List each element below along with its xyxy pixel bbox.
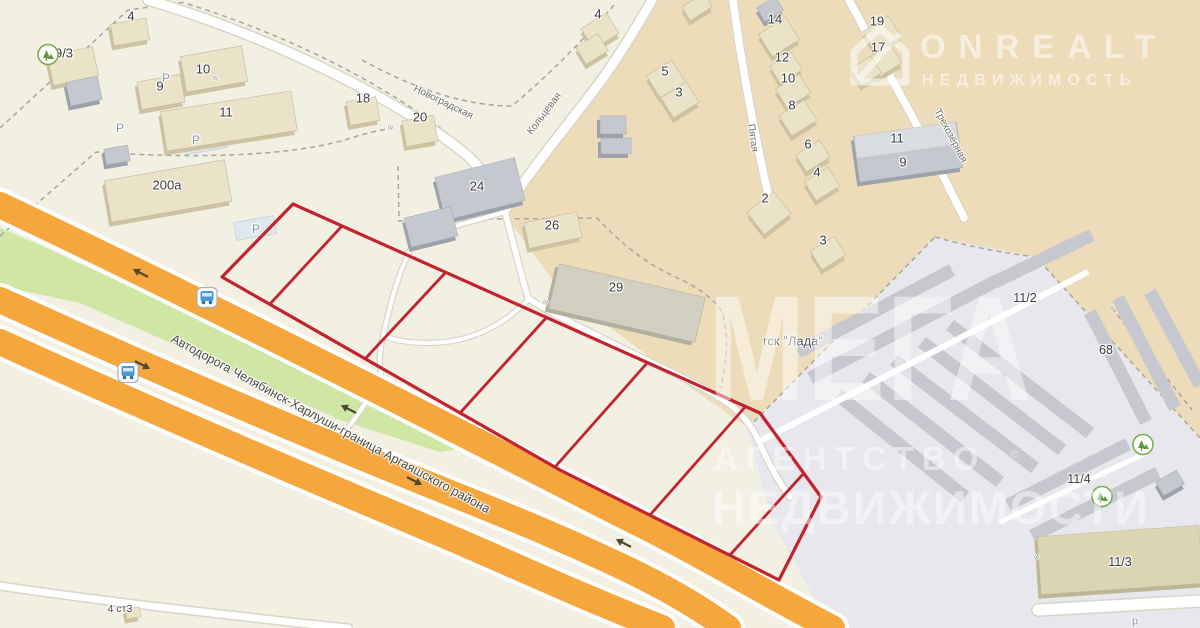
logo-tagline-text: НЕДВИЖИМОСТЬ (922, 72, 1137, 90)
building (399, 115, 439, 151)
house-logo-icon (846, 20, 916, 90)
building (598, 138, 631, 158)
logo-brand-text: ONREALT (920, 28, 1168, 66)
watermark-line3: НЕДВИЖИМОСТИ (712, 480, 1150, 535)
watermark-line2: АГЕНТСТВО (714, 440, 986, 478)
building (343, 97, 380, 130)
building (597, 116, 626, 138)
building (1034, 525, 1200, 598)
map-canvas[interactable]: 49/310911200а182024262945314121086423191… (0, 0, 1200, 628)
onrealt-logo: ONREALT НЕДВИЖИМОСТЬ (846, 20, 916, 95)
watermark-line1: МЕГА (708, 262, 1033, 435)
